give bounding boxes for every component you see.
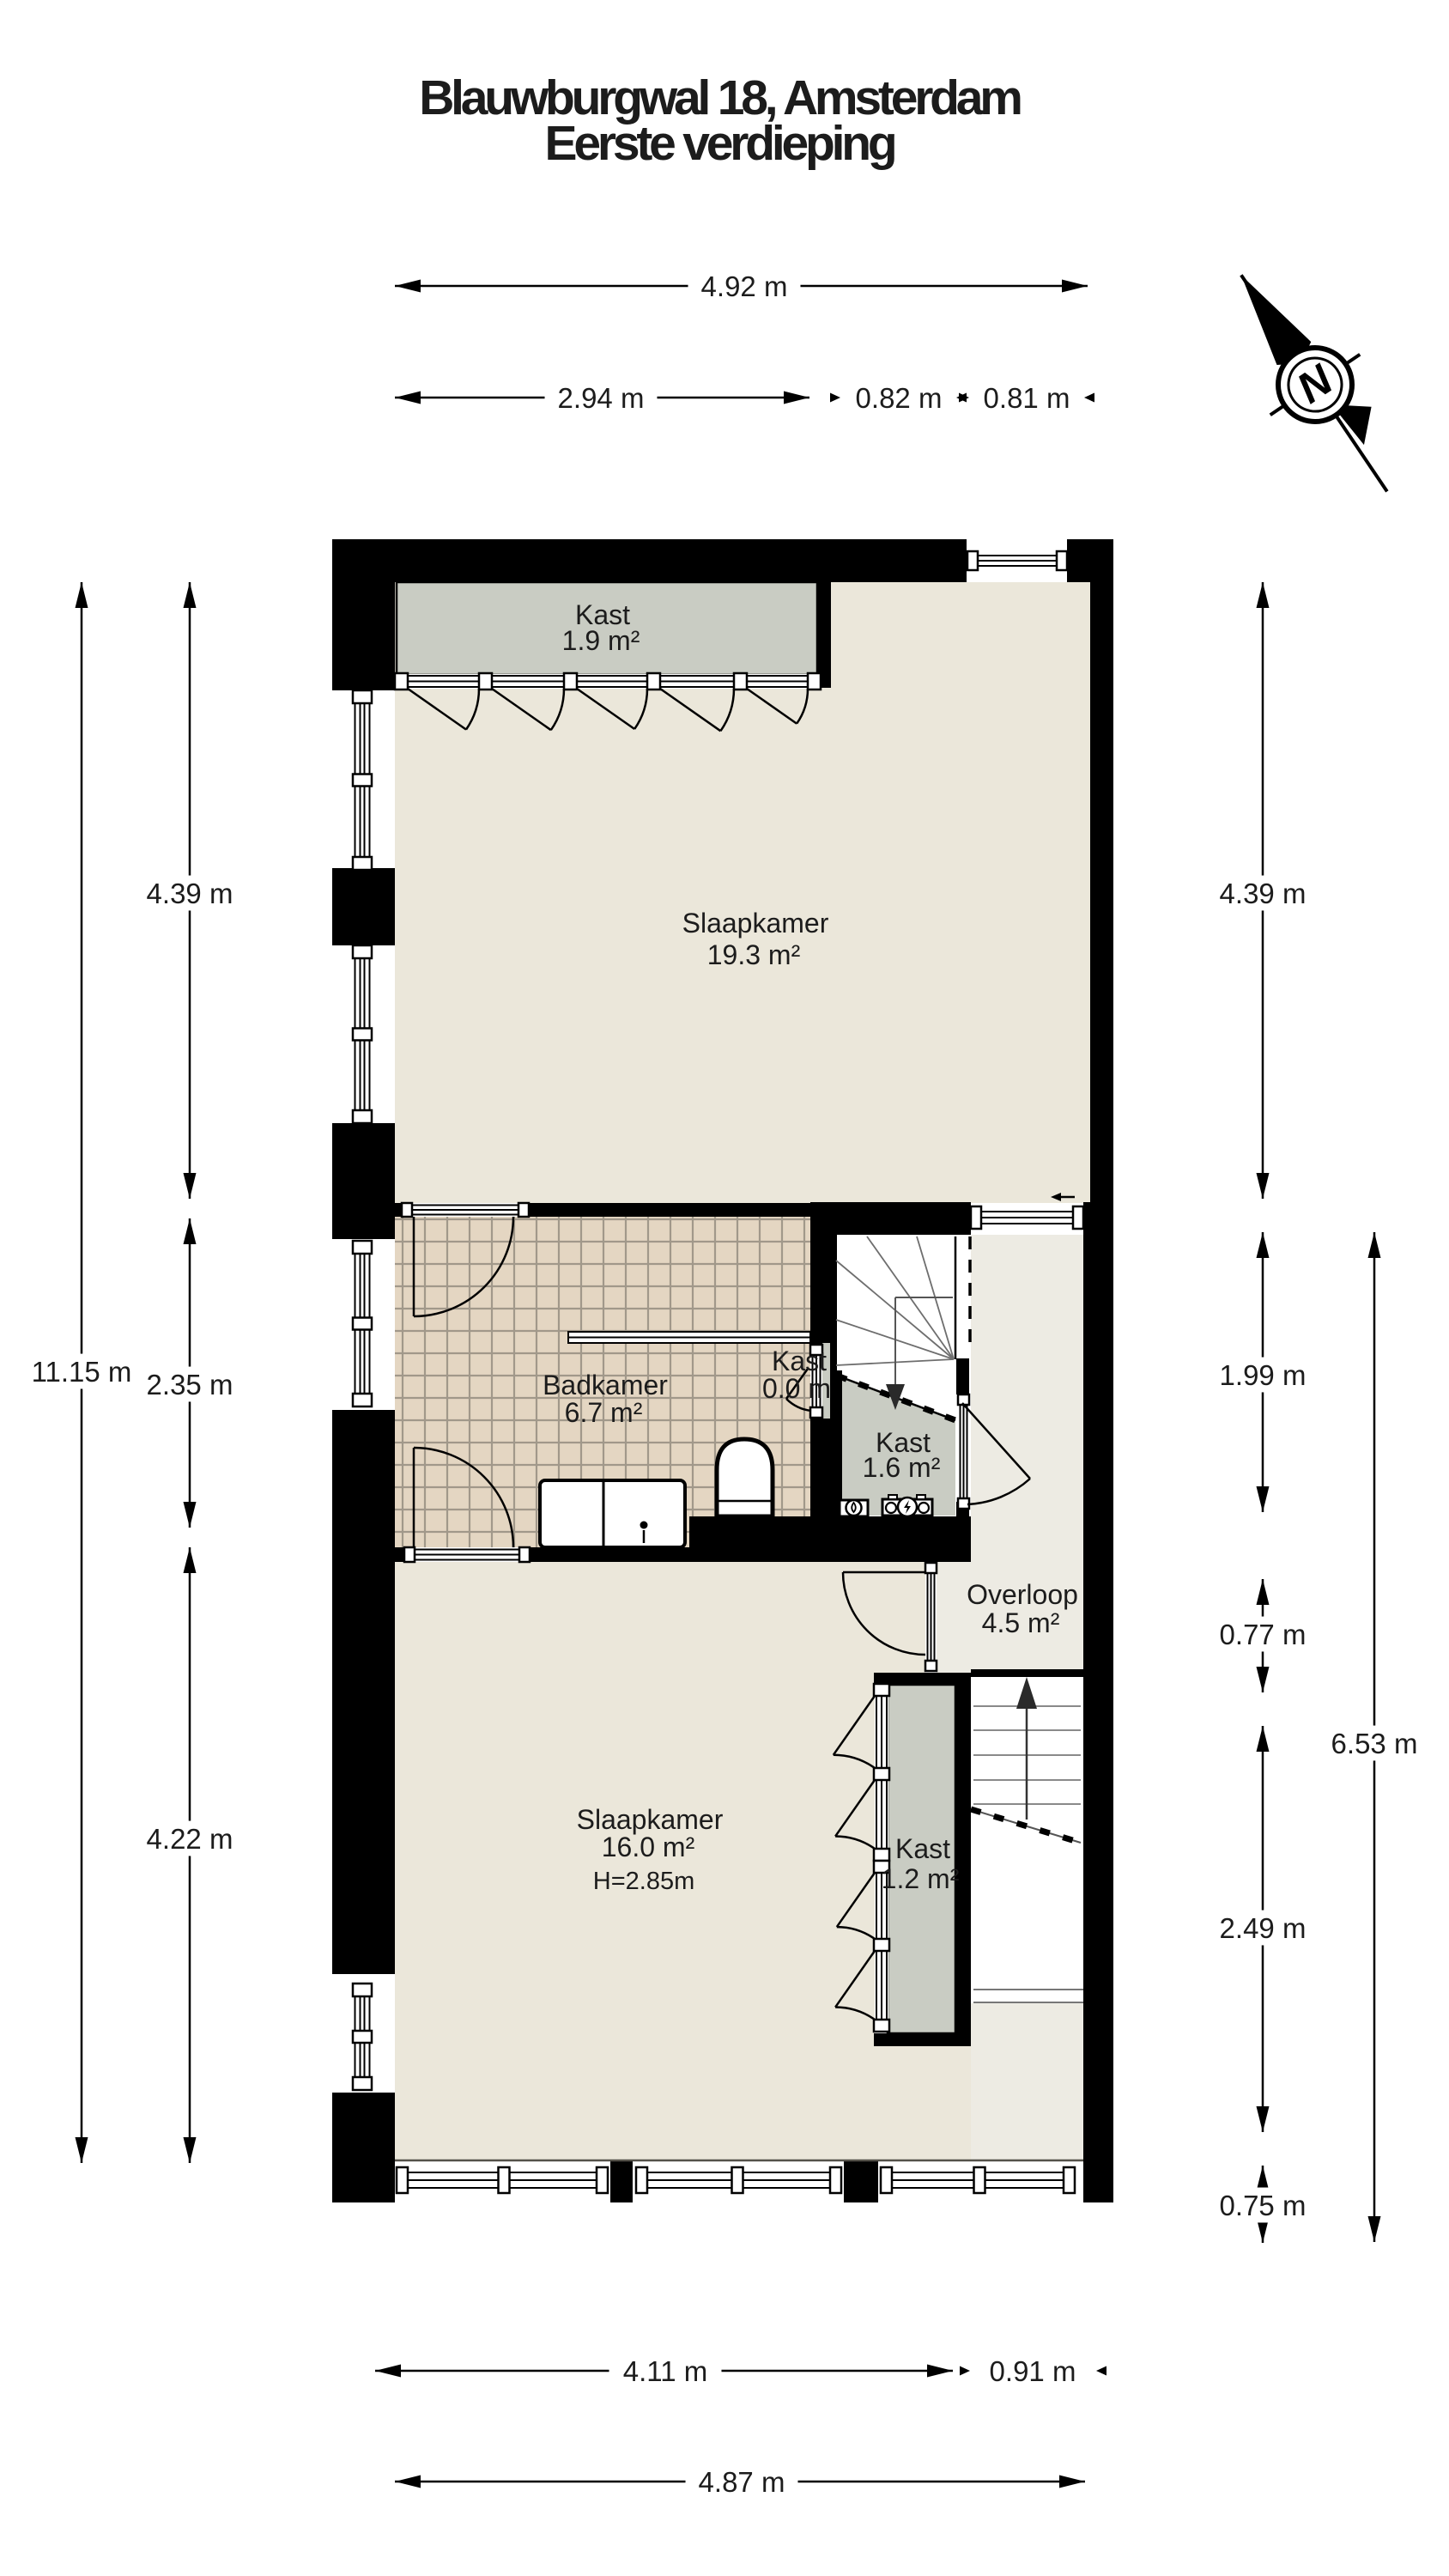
svg-text:1.2 m²: 1.2 m² [882,1863,960,1894]
svg-text:4.5 m²: 4.5 m² [982,1607,1060,1638]
svg-text:4.39 m: 4.39 m [147,878,233,909]
svg-text:1.99 m: 1.99 m [1220,1359,1307,1391]
svg-text:0.77 m: 0.77 m [1220,1619,1307,1650]
svg-text:4.87 m: 4.87 m [699,2466,785,2498]
svg-text:11.15 m: 11.15 m [32,1356,132,1388]
svg-text:19.3 m²: 19.3 m² [707,939,801,970]
svg-text:Overloop: Overloop [967,1579,1078,1610]
svg-text:2.94 m: 2.94 m [558,382,645,414]
svg-text:0.81 m: 0.81 m [984,382,1070,414]
svg-text:0.82 m: 0.82 m [856,382,943,414]
svg-text:Kast: Kast [772,1346,827,1376]
svg-text:0.75 m: 0.75 m [1220,2190,1307,2221]
svg-text:0.91 m: 0.91 m [990,2355,1076,2387]
svg-text:0.0 m: 0.0 m [762,1373,831,1404]
svg-text:4.92 m: 4.92 m [701,270,788,302]
svg-text:4.22 m: 4.22 m [147,1823,233,1855]
svg-text:16.0 m²: 16.0 m² [602,1832,695,1862]
svg-text:Eerste verdieping: Eerste verdieping [545,116,894,171]
svg-text:1.9 m²: 1.9 m² [562,625,640,656]
svg-text:Slaapkamer: Slaapkamer [577,1804,724,1835]
svg-text:6.7 m²: 6.7 m² [565,1397,643,1428]
svg-text:4.11 m: 4.11 m [623,2355,707,2387]
svg-text:4.39 m: 4.39 m [1220,878,1307,909]
svg-text:2.49 m: 2.49 m [1220,1912,1307,1944]
svg-text:2.35 m: 2.35 m [147,1369,233,1400]
svg-text:Badkamer: Badkamer [543,1370,668,1400]
svg-text:6.53 m: 6.53 m [1331,1728,1418,1759]
svg-text:H=2.85m: H=2.85m [593,1868,694,1895]
svg-text:Kast: Kast [895,1833,950,1864]
svg-text:1.6 m²: 1.6 m² [863,1452,941,1483]
svg-text:Slaapkamer: Slaapkamer [682,908,829,939]
